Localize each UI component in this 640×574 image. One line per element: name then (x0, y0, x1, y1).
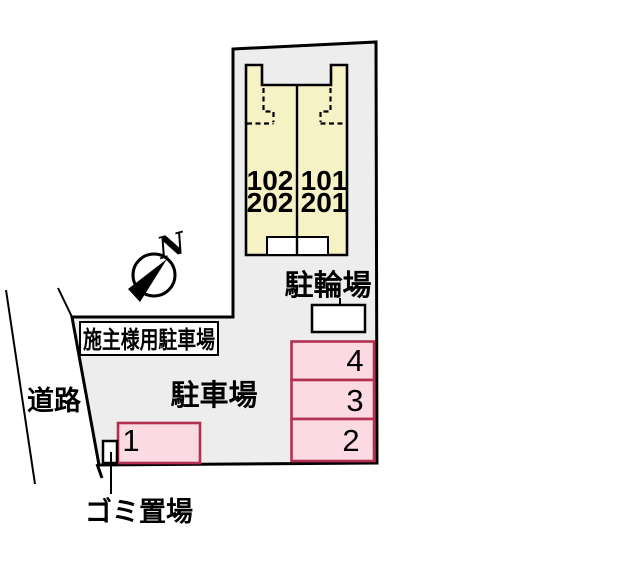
garbage-label: ゴミ置場 (85, 496, 193, 527)
parking-lot-label: 駐車場 (170, 379, 257, 412)
parking-space-2-number: 2 (342, 423, 359, 458)
bicycle-parking-box (312, 305, 365, 332)
bicycle-parking-label: 駐輪場 (284, 268, 371, 302)
owner-parking-label: 施主様用駐車場 (83, 326, 215, 354)
unit-label-202: 202 (247, 187, 294, 218)
unit-label-201: 201 (301, 187, 348, 218)
parking-space-4-number: 4 (346, 343, 363, 378)
parking-space-1-number: 1 (122, 423, 139, 458)
parking-space-2 (292, 419, 375, 461)
road-label: 道路 (27, 385, 82, 416)
parking-space-3-number: 3 (346, 383, 363, 418)
site-plan: 102 202 101 201 駐輪場 4 3 2 1 施主様用駐車場 駐車場 … (0, 0, 640, 574)
